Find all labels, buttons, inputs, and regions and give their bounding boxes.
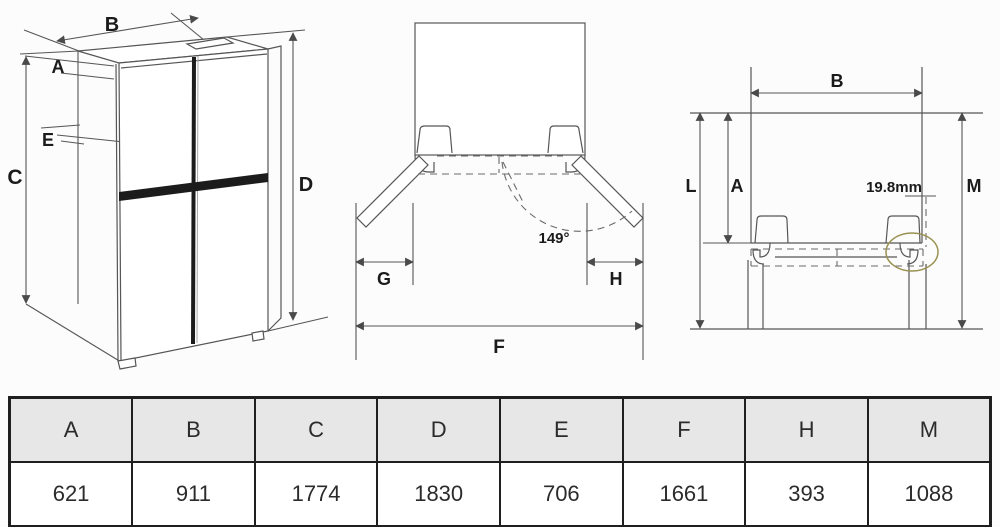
front-view-label-b: B	[105, 14, 119, 36]
hinge-gap-label: 19.8mm	[866, 179, 922, 196]
side-view-label-l: L	[686, 176, 697, 196]
table-header-cell: H	[745, 398, 868, 463]
fridge-foot-right	[252, 331, 264, 341]
table-header-cell: E	[500, 398, 623, 463]
table-header-cell: M	[868, 398, 991, 463]
dimensions-table: A B C D E F H M 621 911 1774 1830 706 16…	[8, 396, 992, 527]
front-view-label-c: C	[7, 166, 22, 189]
installation-clearance-view: B L A M 19.8mm	[680, 0, 1000, 345]
hinge-highlight-ellipse	[886, 233, 938, 271]
handle-left	[755, 216, 788, 243]
table-value-cell: 1661	[623, 462, 746, 527]
side-view-dimension-lines	[700, 93, 962, 328]
table-header-cell: A	[10, 398, 133, 463]
top-view-label-g: G	[377, 269, 391, 289]
table-header-cell: C	[255, 398, 378, 463]
table-header-cell: F	[623, 398, 746, 463]
door-opening-angle-label: 149°	[538, 230, 569, 247]
hinge-detail-left	[753, 243, 770, 264]
table-value-row: 621 911 1774 1830 706 1661 393 1088	[10, 462, 991, 527]
table-value-cell: 1088	[868, 462, 991, 527]
side-view-label-a: A	[731, 176, 744, 196]
front-view-label-e: E	[42, 130, 54, 150]
table-value-cell: 621	[10, 462, 133, 527]
top-view-doors-open: G H F 149°	[340, 0, 660, 370]
table-value-cell: 1774	[255, 462, 378, 527]
top-view-label-f: F	[493, 337, 505, 358]
open-door-left	[357, 156, 428, 227]
top-view-body	[357, 23, 643, 227]
table-header-row: A B C D E F H M	[10, 398, 991, 463]
fridge-cabinet-outline	[78, 37, 281, 369]
handle-right	[886, 216, 920, 243]
front-view-label-d: D	[299, 174, 313, 196]
table-value-cell: 1830	[377, 462, 500, 527]
front-perspective-view: B A E C D	[0, 0, 340, 392]
table-value-cell: 706	[500, 462, 623, 527]
side-view-label-m: M	[967, 176, 982, 196]
table-header-cell: D	[377, 398, 500, 463]
vertical-door-divider-bar	[193, 57, 194, 344]
table-value-cell: 911	[132, 462, 255, 527]
side-view-body	[690, 67, 983, 329]
open-door-right	[572, 156, 643, 227]
table-header-cell: B	[132, 398, 255, 463]
table-value-cell: 393	[745, 462, 868, 527]
top-view-label-h: H	[610, 269, 623, 289]
side-view-dashed-outline	[751, 197, 926, 266]
side-view-label-b: B	[831, 71, 844, 91]
front-view-label-a: A	[52, 57, 65, 77]
refrigerator-dimensions-figure: B A E C D	[0, 0, 1000, 527]
